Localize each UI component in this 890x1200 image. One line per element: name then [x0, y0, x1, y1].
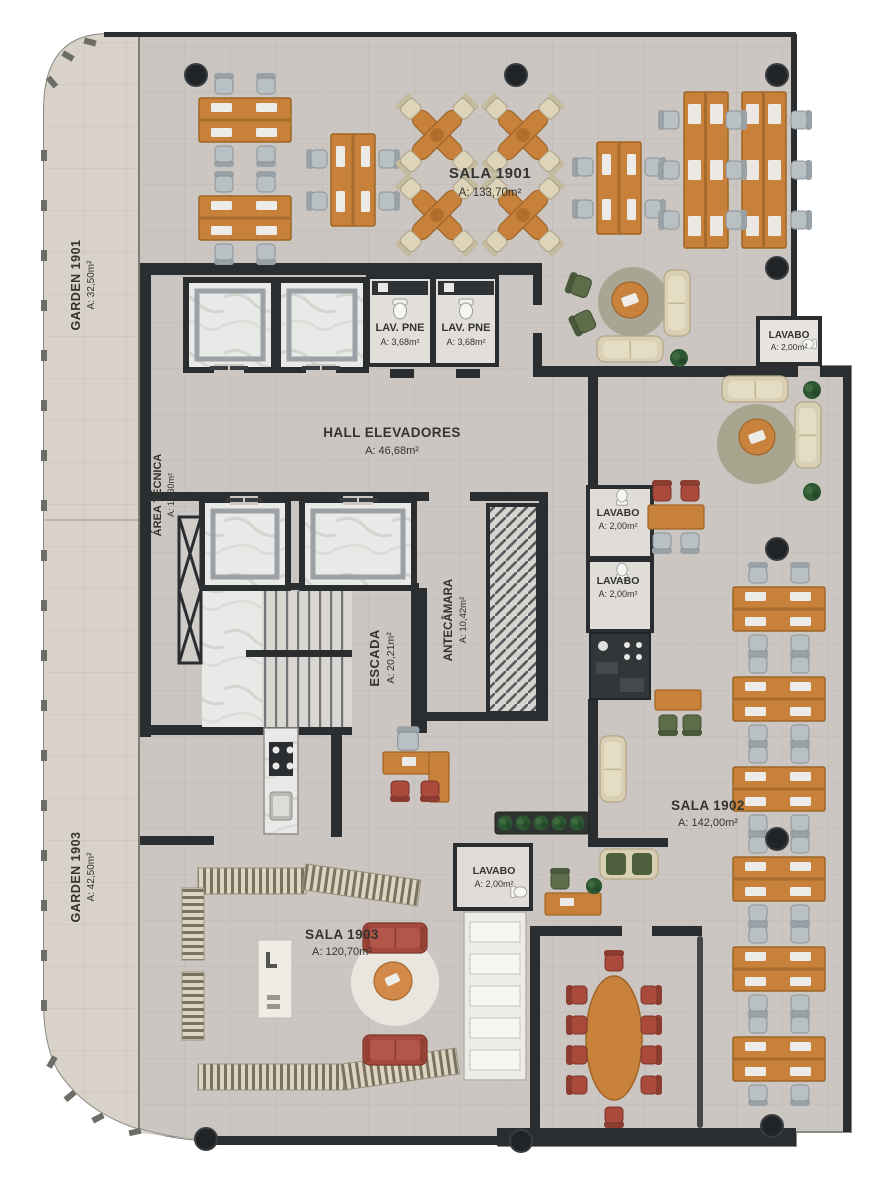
- kitchen-island: [264, 728, 298, 834]
- planter-row: [495, 812, 589, 834]
- svg-text:ÁREA TÉCNICA: ÁREA TÉCNICA: [151, 454, 164, 537]
- wall-top: [104, 32, 796, 37]
- elevator-shaft-4: [302, 496, 414, 588]
- plant: [803, 381, 821, 399]
- label-sala1902-area: A: 142,00m²: [678, 817, 738, 829]
- label-sala1901-name: SALA 1901: [449, 165, 531, 182]
- label-lavabo-top-name: LAVABO: [769, 330, 810, 341]
- plant: [803, 483, 821, 501]
- wall-1903-top: [140, 836, 214, 845]
- area-tecnica-shaft: [179, 517, 201, 663]
- label-hall-name: HALL ELEVADORES: [323, 425, 461, 440]
- red-sofa: [363, 1035, 427, 1065]
- lounge-sala1903: [351, 923, 439, 1065]
- wall-meet-top-a: [530, 926, 622, 936]
- stairs: [202, 591, 352, 727]
- label-sala1903-name: SALA 1903: [305, 927, 379, 942]
- svg-text:GARDEN 1901: GARDEN 1901: [69, 240, 83, 331]
- svg-text:A: 10,42m²: A: 10,42m²: [458, 597, 469, 643]
- svg-text:GARDEN 1903: GARDEN 1903: [69, 832, 83, 923]
- antecamara-shaft: [488, 505, 538, 713]
- column: [185, 64, 207, 86]
- wall-right-outer: [843, 366, 851, 1132]
- lavabo-top-room: [758, 318, 820, 364]
- label-lavpne1-area: A: 3,68m²: [380, 337, 419, 347]
- toilet-icon: [616, 489, 627, 505]
- elevator-shaft-3: [202, 496, 288, 588]
- label-lavabo-m1-area: A: 2,00m²: [598, 521, 637, 531]
- label-sala1903-area: A: 120,70m²: [312, 946, 372, 958]
- label-lavabo-top-area: A: 2,00m²: [771, 342, 808, 352]
- svg-text:ESCADA: ESCADA: [367, 629, 382, 687]
- label-lavabo1903-name: LAVABO: [473, 865, 516, 877]
- wall-hall-bottom-c: [470, 492, 548, 501]
- label-lavpne1-name: LAV. PNE: [376, 322, 425, 334]
- label-lavpne2-area: A: 3,68m²: [446, 337, 485, 347]
- svg-text:A: 13,30m²: A: 13,30m²: [166, 473, 176, 517]
- column: [766, 64, 788, 86]
- label-hall-area: A: 46,68m²: [365, 445, 419, 457]
- label-lavpne2-name: LAV. PNE: [442, 322, 491, 334]
- wall-antec-right: [539, 492, 548, 721]
- wall-bottom-thin: [210, 1136, 498, 1145]
- floor-plan-drawing: SALA 1901 A: 133,70m² GARDEN 1901 A: 32,…: [0, 0, 890, 1200]
- svg-text:A: 42,50m²: A: 42,50m²: [86, 852, 97, 902]
- beige-sofa: [597, 336, 663, 362]
- bench-with-cushions: [600, 849, 658, 879]
- wall-h845: [588, 838, 668, 847]
- wall-v590-a: [588, 377, 598, 487]
- wall-stub: [331, 725, 342, 837]
- label-lavabo-m2-name: LAVABO: [597, 575, 640, 587]
- wall-core-top: [145, 263, 539, 275]
- elevator-shaft-1: [186, 280, 274, 374]
- lavabo-1903-room: [455, 845, 531, 909]
- column: [766, 257, 788, 279]
- coffee-table: [612, 282, 648, 318]
- kitchenette-counter: [590, 633, 650, 699]
- svg-text:ANTECÂMARA: ANTECÂMARA: [442, 579, 455, 661]
- console-table: [258, 940, 292, 1018]
- label-lavabo1903-area: A: 2,00m²: [474, 879, 513, 889]
- wall-hall-right-a: [533, 263, 542, 305]
- wall-meet-top-b: [652, 926, 702, 936]
- wall-hall-bottom-b: [417, 492, 429, 501]
- beige-sofa: [664, 270, 690, 336]
- label-lavabo-m1-name: LAVABO: [597, 507, 640, 519]
- beige-sofa: [795, 402, 821, 468]
- column: [766, 538, 788, 560]
- beige-sofa: [722, 376, 788, 402]
- label-lavabo-m2-area: A: 2,00m²: [598, 589, 637, 599]
- wall-meet-left: [530, 926, 540, 1140]
- svg-text:A: 20,21m²: A: 20,21m²: [385, 632, 397, 684]
- beige-bench: [600, 736, 626, 802]
- elevator-shaft-2: [278, 280, 366, 374]
- svg-text:A: 32,50m²: A: 32,50m²: [86, 260, 97, 310]
- floor-plan-page: SALA 1901 A: 133,70m² GARDEN 1901 A: 32,…: [0, 0, 890, 1200]
- column: [766, 828, 788, 850]
- toilet-icon: [393, 299, 407, 319]
- glass-partition: [697, 936, 703, 1128]
- toilet-icon: [459, 299, 473, 319]
- column: [761, 1115, 783, 1137]
- label-sala1901-area: A: 133,70m²: [459, 187, 522, 199]
- column: [505, 64, 527, 86]
- wall-core-left: [140, 263, 151, 737]
- column: [195, 1128, 217, 1150]
- column: [510, 1130, 532, 1152]
- wall-stair-right: [411, 588, 427, 733]
- wall-bottom-thick: [497, 1128, 796, 1146]
- ladder-shelf: [464, 912, 526, 1080]
- label-sala1902-name: SALA 1902: [671, 798, 745, 813]
- coffee-table: [739, 419, 775, 455]
- wall-sala1902-top-a: [533, 366, 798, 377]
- plant: [670, 349, 688, 367]
